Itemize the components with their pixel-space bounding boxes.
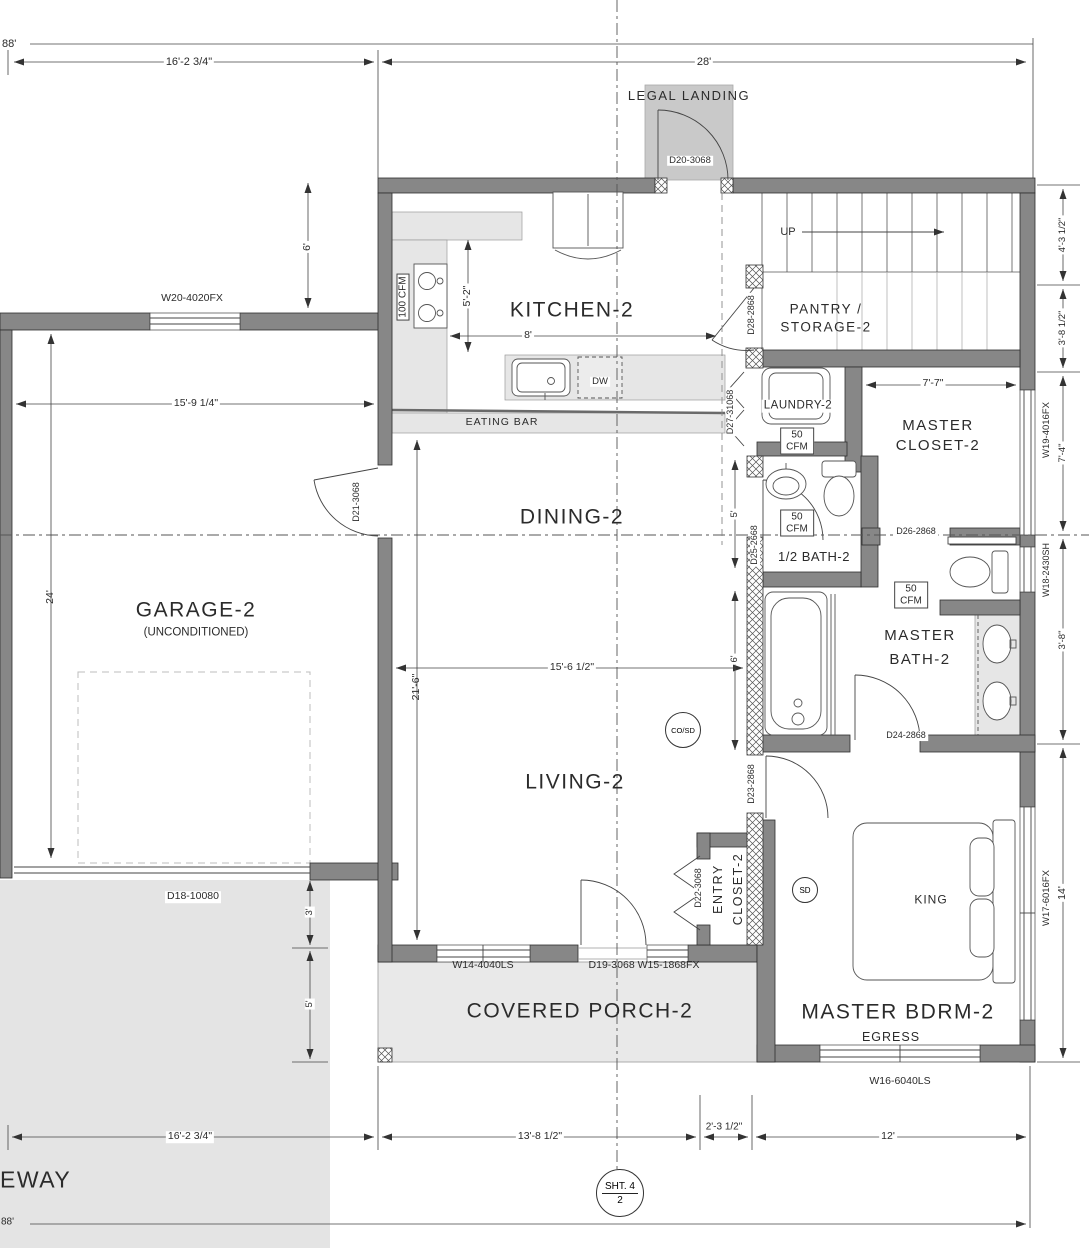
room-garage: GARAGE-2 [136, 598, 257, 621]
bed-king-label: KING [914, 893, 947, 906]
dim-hall-width: 6' [730, 653, 740, 664]
window-tag-w18: W18-2430SH [1042, 543, 1052, 597]
closet-sliding-door [948, 537, 1016, 544]
sheet-marker: SHT. 4 2 [596, 1169, 644, 1217]
garage-door [14, 867, 310, 873]
dim-overall-top: 88' [2, 38, 16, 50]
window-tag-w19: W19-4016FX [1042, 402, 1052, 458]
dim-kitchen-depth: 5'-2" [462, 284, 474, 309]
room-entry-closet-line1: ENTRY [712, 864, 726, 914]
vent-50cfm-master-bath: 50 CFM [894, 582, 928, 609]
vent-100cfm: 100 CFM [397, 273, 410, 320]
door-tag-d25: D25-2668 [750, 523, 760, 567]
half-bath-toilet-bowl [824, 476, 854, 516]
floor-plan-drawing [0, 0, 1089, 1248]
room-laundry: LAUNDRY-2 [762, 400, 834, 413]
dim-right-3: 7'-4" [1058, 442, 1068, 465]
dim-garage-interior-width: 15'-9 1/4" [172, 398, 220, 410]
stairs-up-label: UP [780, 226, 795, 238]
sd-detector: SD [792, 877, 818, 903]
dim-bottom-4: 12' [879, 1131, 897, 1143]
dim-closet-width: 7'-7" [921, 378, 946, 390]
door-tag-d28: D28-2868 [747, 293, 757, 337]
room-dining: DINING-2 [520, 505, 624, 528]
room-covered-porch: COVERED PORCH-2 [467, 999, 694, 1022]
co-sd-detector: CO/SD [665, 712, 701, 748]
dishwasher-label: DW [590, 377, 610, 387]
room-pantry-line1: PANTRY / [790, 303, 863, 318]
eating-bar-counter [392, 413, 725, 433]
pillow-2 [970, 899, 994, 957]
window-tag-w20: W20-4020FX [161, 293, 223, 305]
vanity-sink-2 [983, 682, 1011, 720]
room-garage-sub: (UNCONDITIONED) [144, 627, 249, 640]
door-tag-d23: D23-2868 [747, 762, 757, 806]
dim-living-width: 15'-6 1/2" [548, 662, 596, 674]
room-entry-closet-line2: CLOSET-2 [732, 853, 746, 925]
dim-bottom-1: 16'-2 3/4" [166, 1131, 214, 1143]
porch-post [378, 1048, 392, 1062]
vent-50cfm-half-bath: 50 CFM [780, 510, 814, 537]
eating-bar-label: EATING BAR [466, 417, 539, 429]
dim-bottom-2: 13'-8 1/2" [516, 1131, 564, 1143]
dim-right-4: 3'-8" [1058, 629, 1068, 652]
door-tag-d20: D20-3068 [667, 156, 713, 166]
room-half-bath: 1/2 BATH-2 [776, 550, 852, 564]
dim-half-bath-width: 5' [730, 508, 740, 519]
half-bath-toilet-tank [822, 461, 856, 477]
door-tag-d22: D22-3068 [694, 866, 704, 910]
room-master-closet-line1: MASTER [902, 418, 974, 435]
door-tag-d26: D26-2868 [894, 527, 938, 537]
dim-kitchen-width: 8' [522, 330, 534, 342]
window-tag-w14: W14-4040LS [452, 960, 513, 972]
door-tag-d24: D24-2868 [884, 731, 928, 741]
door-tag-d27: D27-31068 [726, 388, 736, 437]
washer [762, 368, 830, 424]
floor-plan-sheet: 88' 16'-2 3/4" 28' LEGAL LANDING D20-306… [0, 0, 1089, 1248]
door-tag-d21: D21-3068 [352, 480, 362, 524]
room-master-bath-line1: MASTER [884, 628, 956, 645]
dim-overall-bottom: 88' [1, 1217, 14, 1228]
master-toilet-bowl [950, 557, 990, 587]
dim-house-width-top: 28' [695, 56, 713, 68]
egress-label: EGRESS [862, 1031, 920, 1045]
headboard [993, 820, 1015, 983]
door-tag-d18: D18-10080 [165, 891, 221, 903]
dim-right-1: 4'-3 1/2" [1058, 216, 1068, 255]
room-pantry-line2: STORAGE-2 [780, 321, 871, 336]
pedestal-sink [766, 469, 806, 499]
window-tag-w16: W16-6040LS [869, 1076, 930, 1088]
garage-parking-pad-outline [78, 672, 310, 863]
dim-right-5: 14' [1057, 884, 1069, 902]
pillow-1 [970, 838, 994, 896]
dim-kitchen-offset: 6' [302, 241, 314, 253]
dim-living-length: 21'-6" [411, 674, 423, 701]
front-door-threshold [578, 948, 647, 959]
dim-garage-width-top: 16'-2 3/4" [164, 56, 214, 68]
room-master-closet-line2: CLOSET-2 [896, 438, 981, 455]
vent-50cfm-laundry: 50 CFM [780, 428, 814, 455]
room-master-bath-line2: BATH-2 [889, 652, 950, 669]
vanity-sink-1 [983, 625, 1011, 663]
driveway-label: EWAY [0, 1167, 71, 1192]
dim-bottom-3: 2'-3 1/2" [704, 1122, 745, 1133]
dim-right-2: 3'-8 1/2" [1058, 309, 1068, 348]
room-legal-landing: LEGAL LANDING [628, 89, 750, 103]
driveway-area [0, 880, 330, 1248]
dim-left-2: 5' [305, 998, 315, 1009]
dim-garage-depth: 24' [45, 590, 57, 604]
door-window-tag-d19-w15: D19-3068 W15-1868FX [589, 960, 700, 972]
room-living: LIVING-2 [525, 770, 625, 793]
master-toilet-tank [992, 551, 1008, 593]
kitchen-sink [512, 359, 570, 396]
room-kitchen: KITCHEN-2 [510, 298, 634, 321]
room-master-bdrm: MASTER BDRM-2 [801, 1000, 994, 1023]
dim-left-1: 3' [305, 906, 315, 917]
window-tag-w17: W17-6016FX [1042, 870, 1052, 926]
